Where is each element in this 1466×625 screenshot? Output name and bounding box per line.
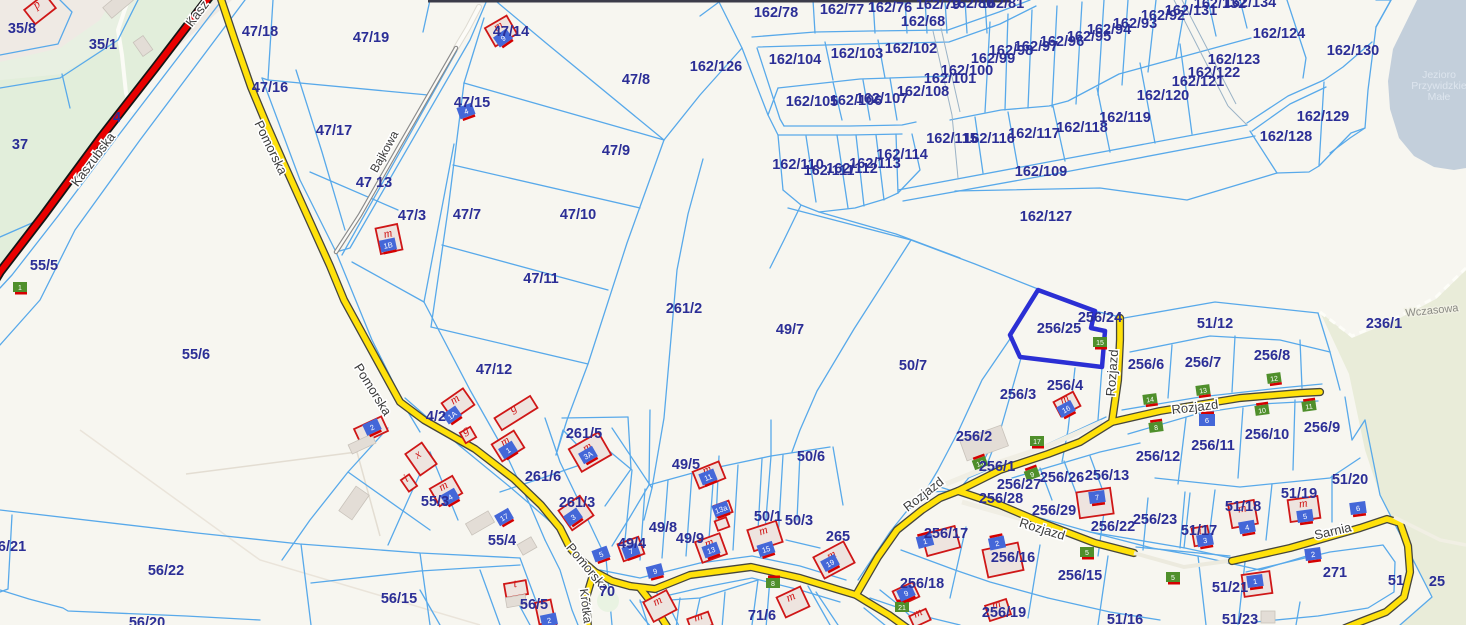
svg-text:256/4: 256/4	[1047, 378, 1083, 394]
svg-text:256/26: 256/26	[1040, 470, 1084, 486]
svg-text:49/9: 49/9	[676, 531, 704, 547]
svg-text:55/6: 55/6	[182, 347, 210, 363]
svg-text:162/68: 162/68	[901, 14, 945, 30]
svg-text:6: 6	[1205, 416, 1209, 425]
svg-text:236/1: 236/1	[1366, 316, 1402, 332]
svg-text:162/123: 162/123	[1208, 52, 1260, 68]
svg-text:51/20: 51/20	[1332, 472, 1368, 488]
svg-text:162/127: 162/127	[1020, 209, 1072, 225]
svg-text:256/6: 256/6	[1128, 357, 1164, 373]
svg-text:162/134: 162/134	[1224, 0, 1276, 11]
svg-text:56/21: 56/21	[0, 539, 26, 555]
svg-text:1B: 1B	[383, 240, 394, 251]
svg-text:12: 12	[1270, 375, 1279, 383]
svg-text:256/11: 256/11	[1191, 438, 1235, 454]
svg-text:256/19: 256/19	[982, 605, 1026, 621]
svg-text:56/22: 56/22	[148, 563, 184, 579]
svg-text:17: 17	[1033, 439, 1041, 446]
svg-text:256/13: 256/13	[1085, 468, 1129, 484]
svg-text:70: 70	[599, 584, 615, 600]
svg-text:162/114: 162/114	[876, 147, 928, 163]
svg-text:50/3: 50/3	[785, 513, 813, 529]
svg-text:51/12: 51/12	[1197, 316, 1233, 332]
svg-text:162/99: 162/99	[971, 51, 1015, 67]
svg-text:56/5: 56/5	[520, 597, 548, 613]
svg-text:47/15: 47/15	[454, 95, 490, 111]
svg-text:50/7: 50/7	[899, 358, 927, 374]
svg-text:56/15: 56/15	[381, 591, 417, 607]
svg-text:162/77: 162/77	[820, 2, 864, 18]
svg-text:1: 1	[18, 285, 22, 292]
svg-text:261/3: 261/3	[559, 495, 595, 511]
svg-text:51/21: 51/21	[1212, 580, 1248, 596]
svg-text:162/119: 162/119	[1099, 110, 1151, 126]
svg-text:256/12: 256/12	[1136, 449, 1180, 465]
svg-text:47/16: 47/16	[252, 80, 288, 96]
svg-text:256/24: 256/24	[1078, 310, 1122, 326]
svg-text:51/19: 51/19	[1281, 486, 1317, 502]
svg-text:47/14: 47/14	[493, 24, 529, 40]
svg-text:162/129: 162/129	[1297, 109, 1349, 125]
svg-text:162/78: 162/78	[754, 5, 798, 21]
svg-text:162/116: 162/116	[963, 131, 1015, 147]
svg-text:13: 13	[1199, 387, 1208, 395]
svg-text:256/18: 256/18	[900, 576, 944, 592]
svg-text:256/16: 256/16	[991, 550, 1035, 566]
svg-text:256/22: 256/22	[1091, 519, 1135, 535]
svg-text:162/104: 162/104	[769, 52, 821, 68]
svg-text:256/29: 256/29	[1032, 503, 1076, 519]
svg-text:256/7: 256/7	[1185, 355, 1221, 371]
svg-text:256/1: 256/1	[979, 459, 1015, 475]
svg-text:49/8: 49/8	[649, 520, 677, 536]
svg-text:256/3: 256/3	[1000, 387, 1036, 403]
svg-text:162/130: 162/130	[1327, 43, 1379, 59]
svg-text:47/11: 47/11	[523, 271, 559, 287]
svg-text:162/124: 162/124	[1253, 26, 1305, 42]
svg-text:256/15: 256/15	[1058, 568, 1102, 584]
svg-text:51/18: 51/18	[1225, 499, 1261, 515]
svg-text:162/120: 162/120	[1137, 88, 1189, 104]
svg-text:51/16: 51/16	[1107, 612, 1143, 625]
svg-text:5: 5	[1171, 575, 1175, 582]
svg-text:256/17: 256/17	[924, 526, 968, 542]
svg-text:11: 11	[1305, 403, 1313, 411]
svg-text:51/23: 51/23	[1222, 612, 1258, 625]
svg-text:265: 265	[826, 529, 850, 545]
svg-text:35/1: 35/1	[89, 37, 117, 53]
svg-text:162/81: 162/81	[980, 0, 1024, 12]
svg-text:5: 5	[1085, 550, 1089, 557]
svg-text:15: 15	[1096, 340, 1104, 347]
svg-text:8: 8	[771, 581, 775, 588]
svg-text:271: 271	[1323, 565, 1347, 581]
svg-text:47/7: 47/7	[453, 207, 481, 223]
svg-text:49/4: 49/4	[618, 536, 646, 552]
svg-text:51/17: 51/17	[1181, 523, 1217, 539]
svg-text:55/4: 55/4	[488, 533, 516, 549]
svg-text:4/2: 4/2	[426, 409, 446, 425]
svg-text:14: 14	[1146, 396, 1155, 404]
svg-text:162/126: 162/126	[690, 59, 742, 75]
svg-text:261/2: 261/2	[666, 301, 702, 317]
svg-text:49/5: 49/5	[672, 457, 700, 473]
svg-text:71/6: 71/6	[748, 608, 776, 624]
svg-text:37: 37	[12, 137, 28, 153]
svg-text:162/103: 162/103	[831, 46, 883, 62]
svg-text:35/8: 35/8	[8, 21, 36, 37]
svg-text:4: 4	[113, 110, 121, 126]
svg-text:256/8: 256/8	[1254, 348, 1290, 364]
svg-text:47/10: 47/10	[560, 207, 596, 223]
svg-text:50/6: 50/6	[797, 449, 825, 465]
svg-text:256/28: 256/28	[979, 491, 1023, 507]
svg-text:47/8: 47/8	[622, 72, 650, 88]
svg-text:162/128: 162/128	[1260, 129, 1312, 145]
svg-text:47/17: 47/17	[316, 123, 352, 139]
svg-text:51: 51	[1388, 573, 1404, 589]
svg-text:162/117: 162/117	[1008, 126, 1060, 142]
svg-text:25: 25	[1429, 574, 1445, 590]
svg-text:21: 21	[898, 605, 906, 612]
svg-text:47 13: 47 13	[356, 175, 392, 191]
svg-text:256/10: 256/10	[1245, 427, 1289, 443]
svg-text:261/5: 261/5	[566, 426, 602, 442]
svg-text:162/109: 162/109	[1015, 164, 1067, 180]
svg-text:47/9: 47/9	[602, 143, 630, 159]
svg-text:256/25: 256/25	[1037, 321, 1081, 337]
svg-text:55/3: 55/3	[421, 494, 449, 510]
svg-text:49/7: 49/7	[776, 322, 804, 338]
svg-text:47/3: 47/3	[398, 208, 426, 224]
svg-text:10: 10	[1258, 407, 1267, 415]
svg-text:162/102: 162/102	[885, 41, 937, 57]
svg-text:256/2: 256/2	[956, 429, 992, 445]
svg-text:256/23: 256/23	[1133, 512, 1177, 528]
svg-text:47/12: 47/12	[476, 362, 512, 378]
svg-text:50/1: 50/1	[754, 509, 782, 525]
svg-text:47/19: 47/19	[353, 30, 389, 46]
svg-text:256/9: 256/9	[1304, 420, 1340, 436]
svg-text:47/18: 47/18	[242, 24, 278, 40]
svg-text:56/20: 56/20	[129, 615, 165, 625]
svg-text:162/105: 162/105	[786, 94, 838, 110]
svg-text:261/6: 261/6	[525, 469, 561, 485]
svg-text:55/5: 55/5	[30, 258, 58, 274]
